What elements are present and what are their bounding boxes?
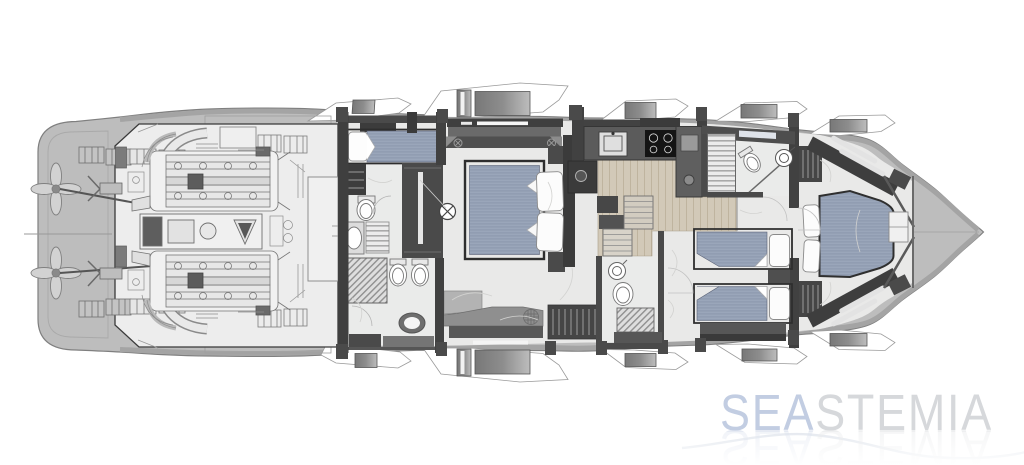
svg-text:SEASTEMIA: SEASTEMIA bbox=[720, 384, 993, 441]
